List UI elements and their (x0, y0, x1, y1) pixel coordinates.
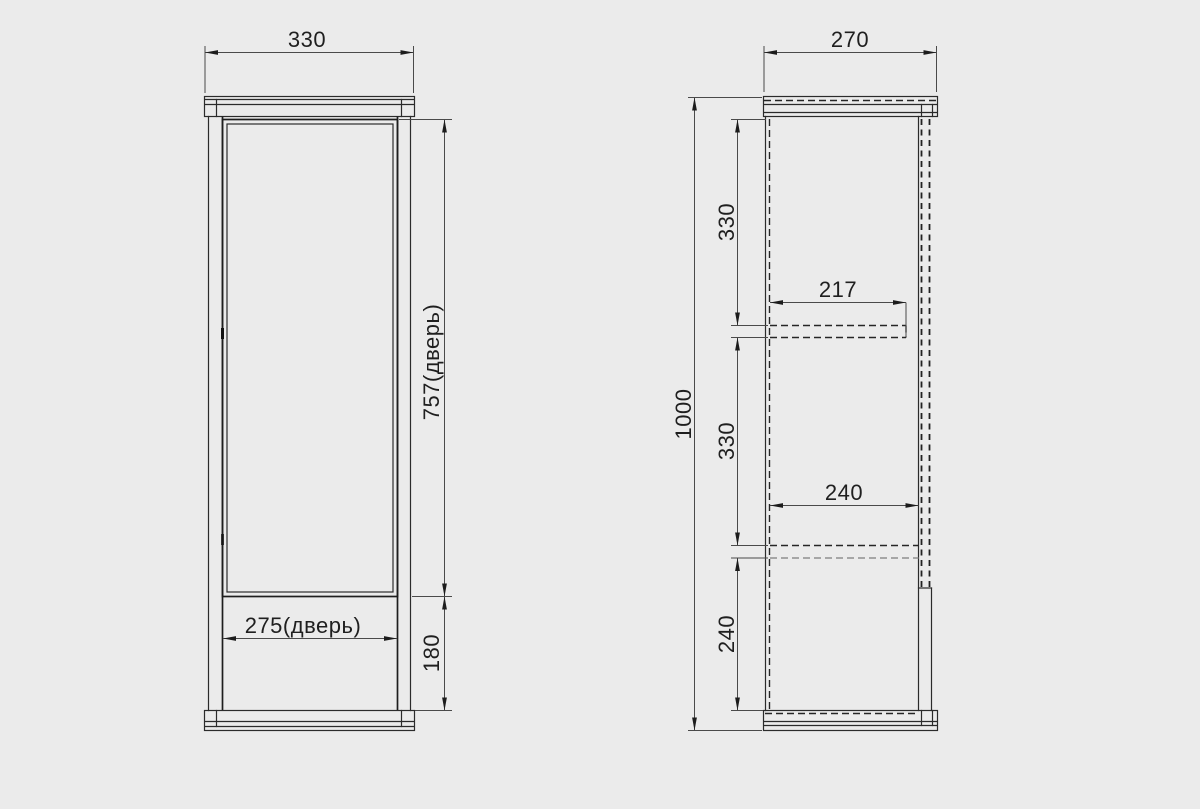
side-section-top-label: 330 (714, 203, 739, 241)
front-door-height-label: 757(дверь) (419, 304, 444, 421)
side-shelf-lower-depth-label: 240 (825, 480, 863, 505)
side-dim-shelf-upper-depth: 217 (770, 277, 906, 337)
front-dim-width: 330 (205, 27, 414, 93)
front-dim-door-height: 757(дверь) (399, 120, 452, 597)
cabinet-dimension-drawing: 330 757(дверь) 180 275(дверь) (0, 0, 1200, 809)
front-dim-plinth-height: 180 (415, 597, 452, 711)
side-base (764, 711, 938, 731)
side-shelf-lower (770, 546, 919, 559)
front-width-label: 330 (288, 27, 326, 52)
side-section-bottom-label: 240 (714, 615, 739, 653)
side-dim-section-top: 330 (714, 120, 768, 326)
front-door-width-label: 275(дверь) (245, 613, 362, 638)
side-total-height-label: 1000 (671, 389, 696, 440)
side-dim-depth: 270 (764, 27, 937, 92)
front-dim-door-width: 275(дверь) (223, 613, 397, 639)
side-dim-section-bottom: 240 (714, 558, 768, 711)
side-carcass (766, 117, 919, 711)
front-view: 330 757(дверь) 180 275(дверь) (205, 27, 453, 731)
side-shelf-upper (770, 326, 906, 338)
side-door-edge (919, 119, 932, 711)
side-crown (764, 97, 938, 117)
side-shelf-upper-depth-label: 217 (819, 277, 857, 302)
side-depth-label: 270 (831, 27, 869, 52)
side-section-middle-label: 330 (714, 422, 739, 460)
side-dim-section-middle: 330 (714, 338, 768, 546)
drawing-canvas: 330 757(дверь) 180 275(дверь) (0, 0, 1200, 809)
side-view: 270 1000 330 330 240 (671, 27, 938, 731)
side-dim-shelf-lower-depth: 240 (770, 480, 919, 506)
front-crown (205, 97, 415, 117)
front-plinth-height-label: 180 (419, 634, 444, 672)
front-door (223, 120, 398, 597)
front-base (205, 711, 415, 731)
